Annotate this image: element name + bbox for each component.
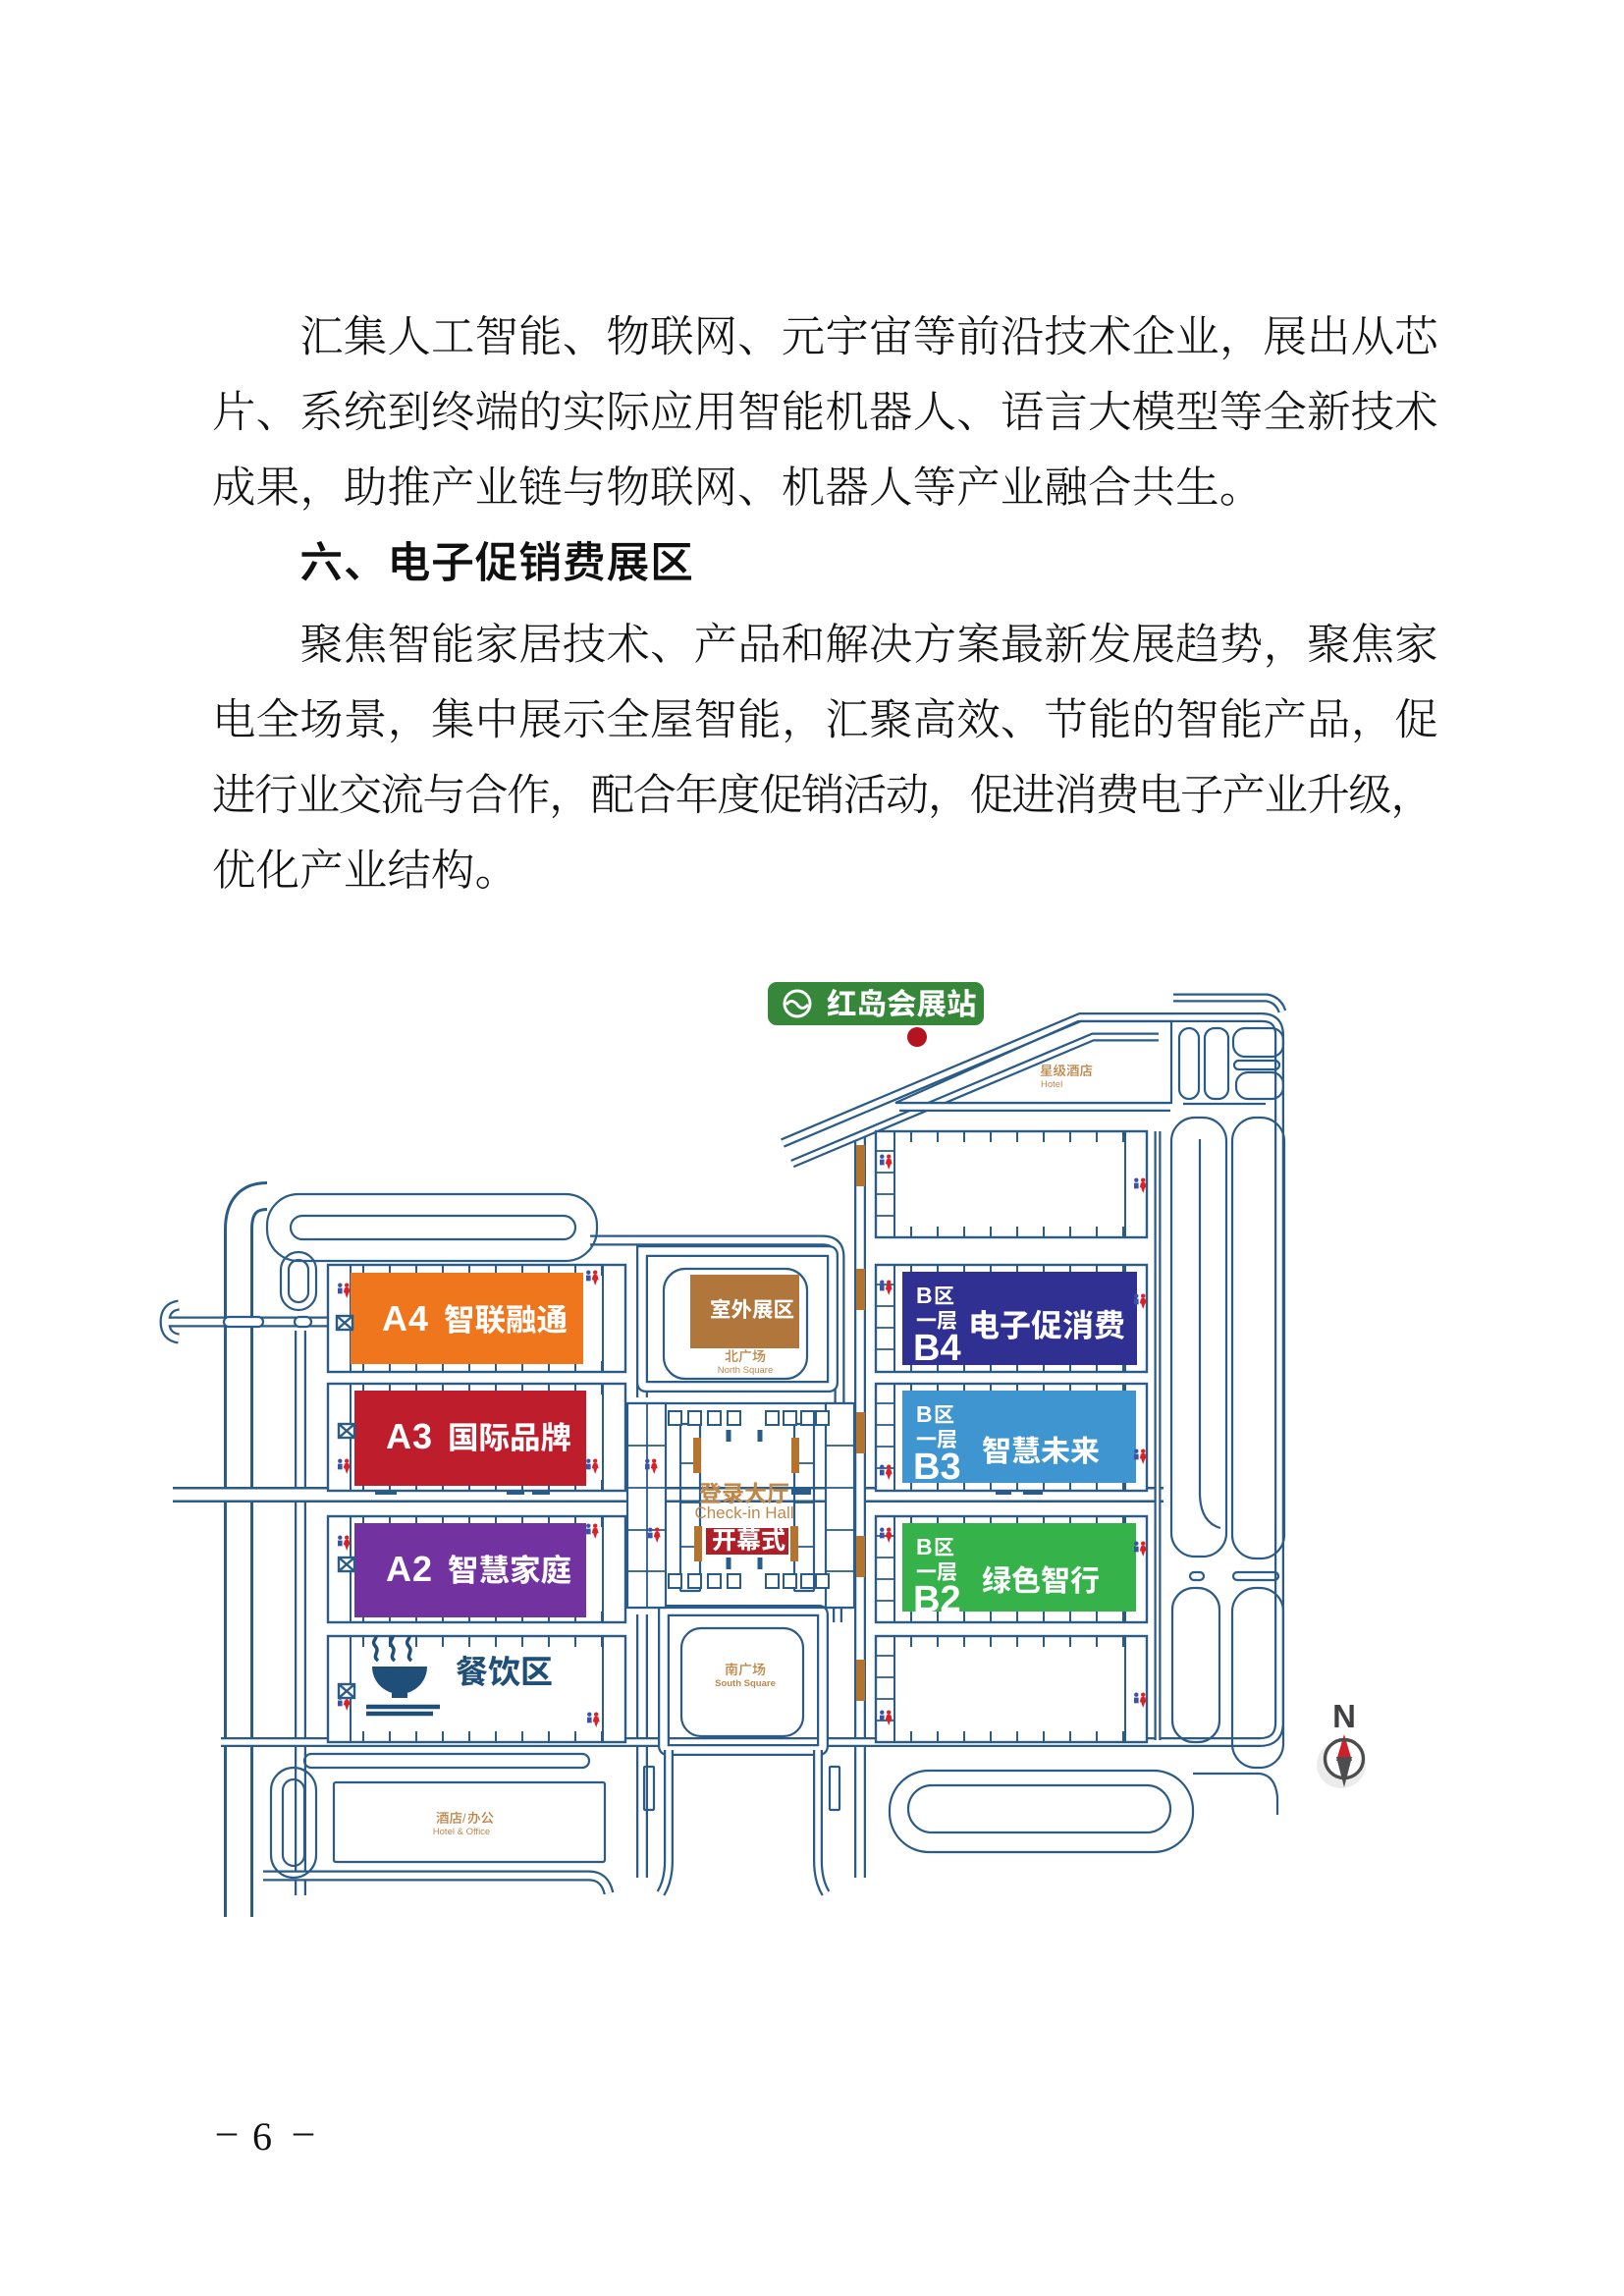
- svg-text:–: –: [216, 2108, 238, 2153]
- svg-text:A3: A3: [386, 1416, 433, 1456]
- svg-text:South Square: South Square: [715, 1678, 776, 1689]
- svg-text:B3: B3: [913, 1447, 961, 1488]
- svg-text:B: B: [916, 1534, 933, 1559]
- svg-text:6: 6: [252, 2114, 272, 2159]
- svg-text:Hotel & Office: Hotel & Office: [433, 1827, 490, 1837]
- svg-text:Check-in Hall: Check-in Hall: [694, 1503, 793, 1522]
- svg-text:N: N: [1332, 1698, 1356, 1734]
- svg-text:North Square: North Square: [718, 1365, 774, 1376]
- svg-text:B2: B2: [913, 1579, 961, 1620]
- svg-text:B4: B4: [913, 1328, 961, 1369]
- svg-text:A4: A4: [382, 1298, 429, 1339]
- svg-text:B: B: [916, 1283, 933, 1308]
- svg-text:Hotel: Hotel: [1041, 1079, 1062, 1090]
- svg-text:B: B: [916, 1401, 933, 1427]
- svg-text:–: –: [293, 2108, 314, 2153]
- svg-text:A2: A2: [386, 1549, 433, 1589]
- svg-text:/: /: [462, 1811, 466, 1826]
